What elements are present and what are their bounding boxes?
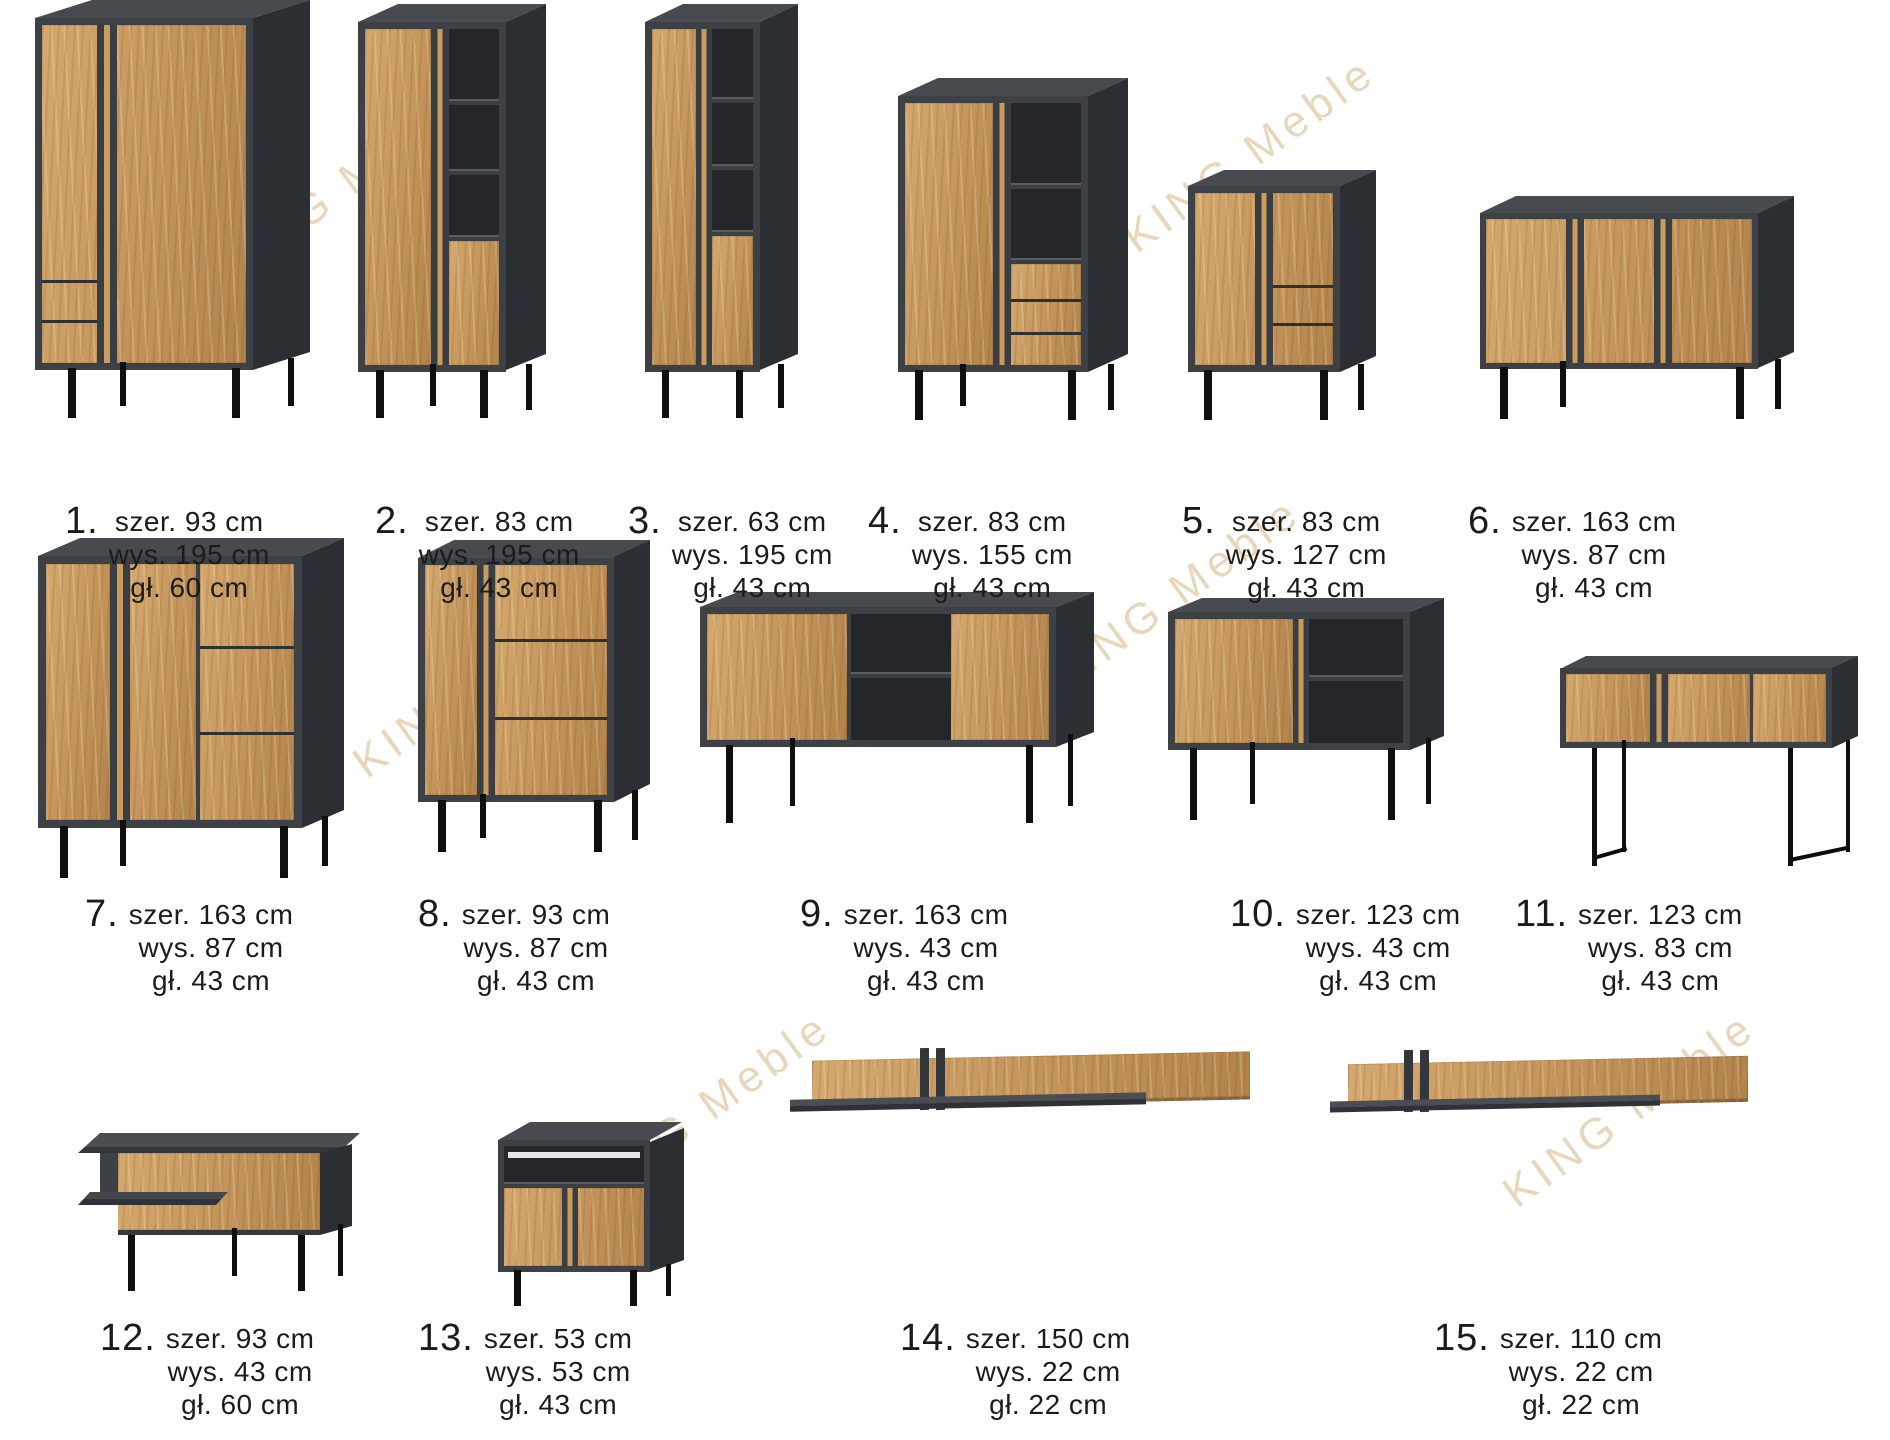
dim-width: szer. 150 cm — [966, 1322, 1131, 1355]
dim-height: wys. 195 cm — [672, 538, 833, 571]
dim-width: szer. 63 cm — [678, 505, 827, 538]
item-number: 6. — [1468, 502, 1502, 604]
dim-depth: gł. 43 cm — [933, 571, 1051, 604]
item-number: 1. — [65, 502, 99, 604]
caption-10: 10. szer. 123 cmwys. 43 cmgł. 43 cm — [1230, 898, 1461, 997]
dim-width: szer. 163 cm — [129, 898, 294, 931]
caption-8: 8. szer. 93 cmwys. 87 cmgł. 43 cm — [418, 898, 610, 997]
dim-depth: gł. 43 cm — [499, 1388, 617, 1421]
dim-height: wys. 127 cm — [1226, 538, 1387, 571]
dim-height: wys. 53 cm — [486, 1355, 631, 1388]
dim-depth: gł. 43 cm — [1535, 571, 1653, 604]
caption-3: 3. szer. 63 cmwys. 195 cmgł. 43 cm — [628, 505, 833, 604]
item-number: 3. — [628, 502, 662, 604]
dim-height: wys. 195 cm — [419, 538, 580, 571]
furniture-15-wall-shelf — [0, 0, 1890, 1440]
dim-depth: gł. 43 cm — [693, 571, 811, 604]
caption-9: 9. szer. 163 cmwys. 43 cmgł. 43 cm — [800, 898, 1008, 997]
item-number: 13. — [418, 1319, 474, 1421]
item-number: 7. — [85, 895, 119, 997]
dim-width: szer. 93 cm — [115, 505, 264, 538]
caption-4: 4. szer. 83 cmwys. 155 cmgł. 43 cm — [868, 505, 1073, 604]
item-number: 5. — [1182, 502, 1216, 604]
dim-depth: gł. 43 cm — [152, 964, 270, 997]
item-number: 12. — [100, 1319, 156, 1421]
dim-height: wys. 87 cm — [1522, 538, 1667, 571]
item-number: 4. — [868, 502, 902, 604]
dim-width: szer. 123 cm — [1578, 898, 1743, 931]
dim-width: szer. 93 cm — [462, 898, 611, 931]
caption-1: 1. szer. 93 cmwys. 195 cmgł. 60 cm — [65, 505, 270, 604]
dim-width: szer. 163 cm — [1512, 505, 1677, 538]
dim-depth: gł. 43 cm — [1319, 964, 1437, 997]
dim-depth: gł. 60 cm — [181, 1388, 299, 1421]
caption-11: 11. szer. 123 cmwys. 83 cmgł. 43 cm — [1515, 898, 1743, 997]
item-number: 9. — [800, 895, 834, 997]
dim-height: wys. 155 cm — [912, 538, 1073, 571]
item-number: 15. — [1434, 1319, 1490, 1421]
caption-2: 2. szer. 83 cmwys. 195 cmgł. 43 cm — [375, 505, 580, 604]
caption-12: 12. szer. 93 cmwys. 43 cmgł. 60 cm — [100, 1322, 315, 1421]
dim-height: wys. 87 cm — [464, 931, 609, 964]
dim-width: szer. 53 cm — [484, 1322, 633, 1355]
dim-depth: gł. 43 cm — [1247, 571, 1365, 604]
caption-15: 15. szer. 110 cmwys. 22 cmgł. 22 cm — [1434, 1322, 1662, 1421]
dim-height: wys. 43 cm — [168, 1355, 313, 1388]
caption-14: 14. szer. 150 cmwys. 22 cmgł. 22 cm — [900, 1322, 1131, 1421]
caption-7: 7. szer. 163 cmwys. 87 cmgł. 43 cm — [85, 898, 293, 997]
dim-depth: gł. 43 cm — [440, 571, 558, 604]
dim-width: szer. 110 cm — [1500, 1322, 1663, 1355]
catalog-page: KING Meble KING Meble KING Meble KING Me… — [0, 0, 1890, 1440]
dim-width: szer. 123 cm — [1296, 898, 1461, 931]
dim-width: szer. 93 cm — [166, 1322, 315, 1355]
item-number: 11. — [1515, 895, 1568, 997]
dim-width: szer. 83 cm — [425, 505, 574, 538]
dim-depth: gł. 43 cm — [477, 964, 595, 997]
dim-depth: gł. 60 cm — [130, 571, 248, 604]
item-number: 14. — [900, 1319, 956, 1421]
dim-height: wys. 83 cm — [1588, 931, 1733, 964]
dim-depth: gł. 43 cm — [1601, 964, 1719, 997]
caption-13: 13. szer. 53 cmwys. 53 cmgł. 43 cm — [418, 1322, 633, 1421]
caption-5: 5. szer. 83 cmwys. 127 cmgł. 43 cm — [1182, 505, 1387, 604]
dim-height: wys. 195 cm — [109, 538, 270, 571]
item-number: 10. — [1230, 895, 1286, 997]
item-number: 2. — [375, 502, 409, 604]
dim-height: wys. 87 cm — [139, 931, 284, 964]
dim-width: szer. 83 cm — [918, 505, 1067, 538]
dim-depth: gł. 43 cm — [867, 964, 985, 997]
dim-width: szer. 163 cm — [844, 898, 1009, 931]
dim-height: wys. 43 cm — [854, 931, 999, 964]
dim-width: szer. 83 cm — [1232, 505, 1381, 538]
dim-depth: gł. 22 cm — [1522, 1388, 1640, 1421]
caption-6: 6. szer. 163 cmwys. 87 cmgł. 43 cm — [1468, 505, 1676, 604]
dim-height: wys. 43 cm — [1306, 931, 1451, 964]
item-number: 8. — [418, 895, 452, 997]
dim-depth: gł. 22 cm — [989, 1388, 1107, 1421]
dim-height: wys. 22 cm — [1509, 1355, 1654, 1388]
dim-height: wys. 22 cm — [976, 1355, 1121, 1388]
